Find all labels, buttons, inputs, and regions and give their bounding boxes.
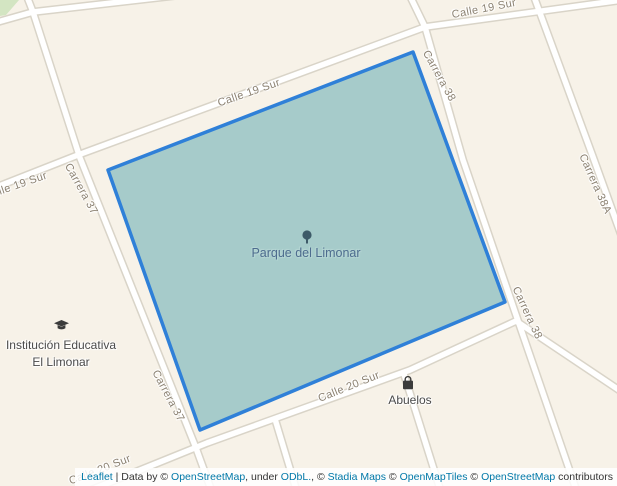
shopping-bag-icon xyxy=(402,376,414,390)
odbl-link[interactable]: ODbL. xyxy=(281,471,311,483)
attribution-data-by: Data by © xyxy=(121,471,171,483)
attribution-under: , under xyxy=(245,471,281,483)
map-canvas[interactable]: Calle 19 Sur Calle 19 Sur Calle 19 Sur C… xyxy=(0,0,617,486)
stadia-maps-link[interactable]: Stadia Maps xyxy=(328,471,386,483)
openstreetmap-link-1[interactable]: OpenStreetMap xyxy=(171,471,245,483)
graduation-cap-icon xyxy=(54,320,69,332)
openstreetmap-link-2[interactable]: OpenStreetMap xyxy=(481,471,555,483)
tree-icon xyxy=(300,230,314,245)
school-label-line2: El Limonar xyxy=(6,354,116,371)
attribution-comma: , © xyxy=(311,471,328,483)
school-label: Institución Educativa El Limonar xyxy=(6,337,116,371)
leaflet-link[interactable]: Leaflet xyxy=(81,471,113,483)
attribution-separator: | xyxy=(113,471,122,483)
school-label-line1: Institución Educativa xyxy=(6,337,116,354)
shop-label: Abuelos xyxy=(388,393,431,407)
attribution-contributors: contributors xyxy=(555,471,613,483)
openmaptiles-link[interactable]: OpenMapTiles xyxy=(400,471,468,483)
attribution-c2: © xyxy=(468,471,482,483)
park-label: Parque del Limonar xyxy=(251,246,360,260)
attribution-c1: © xyxy=(386,471,400,483)
attribution-bar: Leaflet | Data by © OpenStreetMap, under… xyxy=(75,468,617,486)
